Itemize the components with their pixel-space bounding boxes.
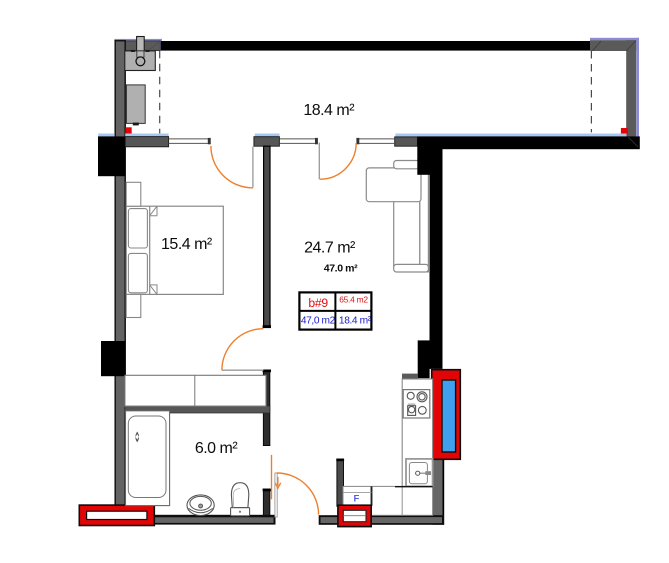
svg-text:b#9: b#9 — [308, 296, 328, 310]
svg-text:65.4 m2: 65.4 m2 — [339, 294, 368, 304]
svg-text:47,0 m2: 47,0 m2 — [301, 316, 336, 327]
svg-text:6.0 m²: 6.0 m² — [195, 440, 239, 457]
svg-text:15.4 m²: 15.4 m² — [161, 236, 213, 253]
svg-text:24.7 m²: 24.7 m² — [304, 239, 356, 256]
svg-text:18.4 m²: 18.4 m² — [339, 316, 372, 327]
svg-text:47.0 m²: 47.0 m² — [324, 263, 358, 275]
svg-text:18.4 m²: 18.4 m² — [303, 102, 355, 119]
svg-text:F: F — [353, 494, 359, 505]
